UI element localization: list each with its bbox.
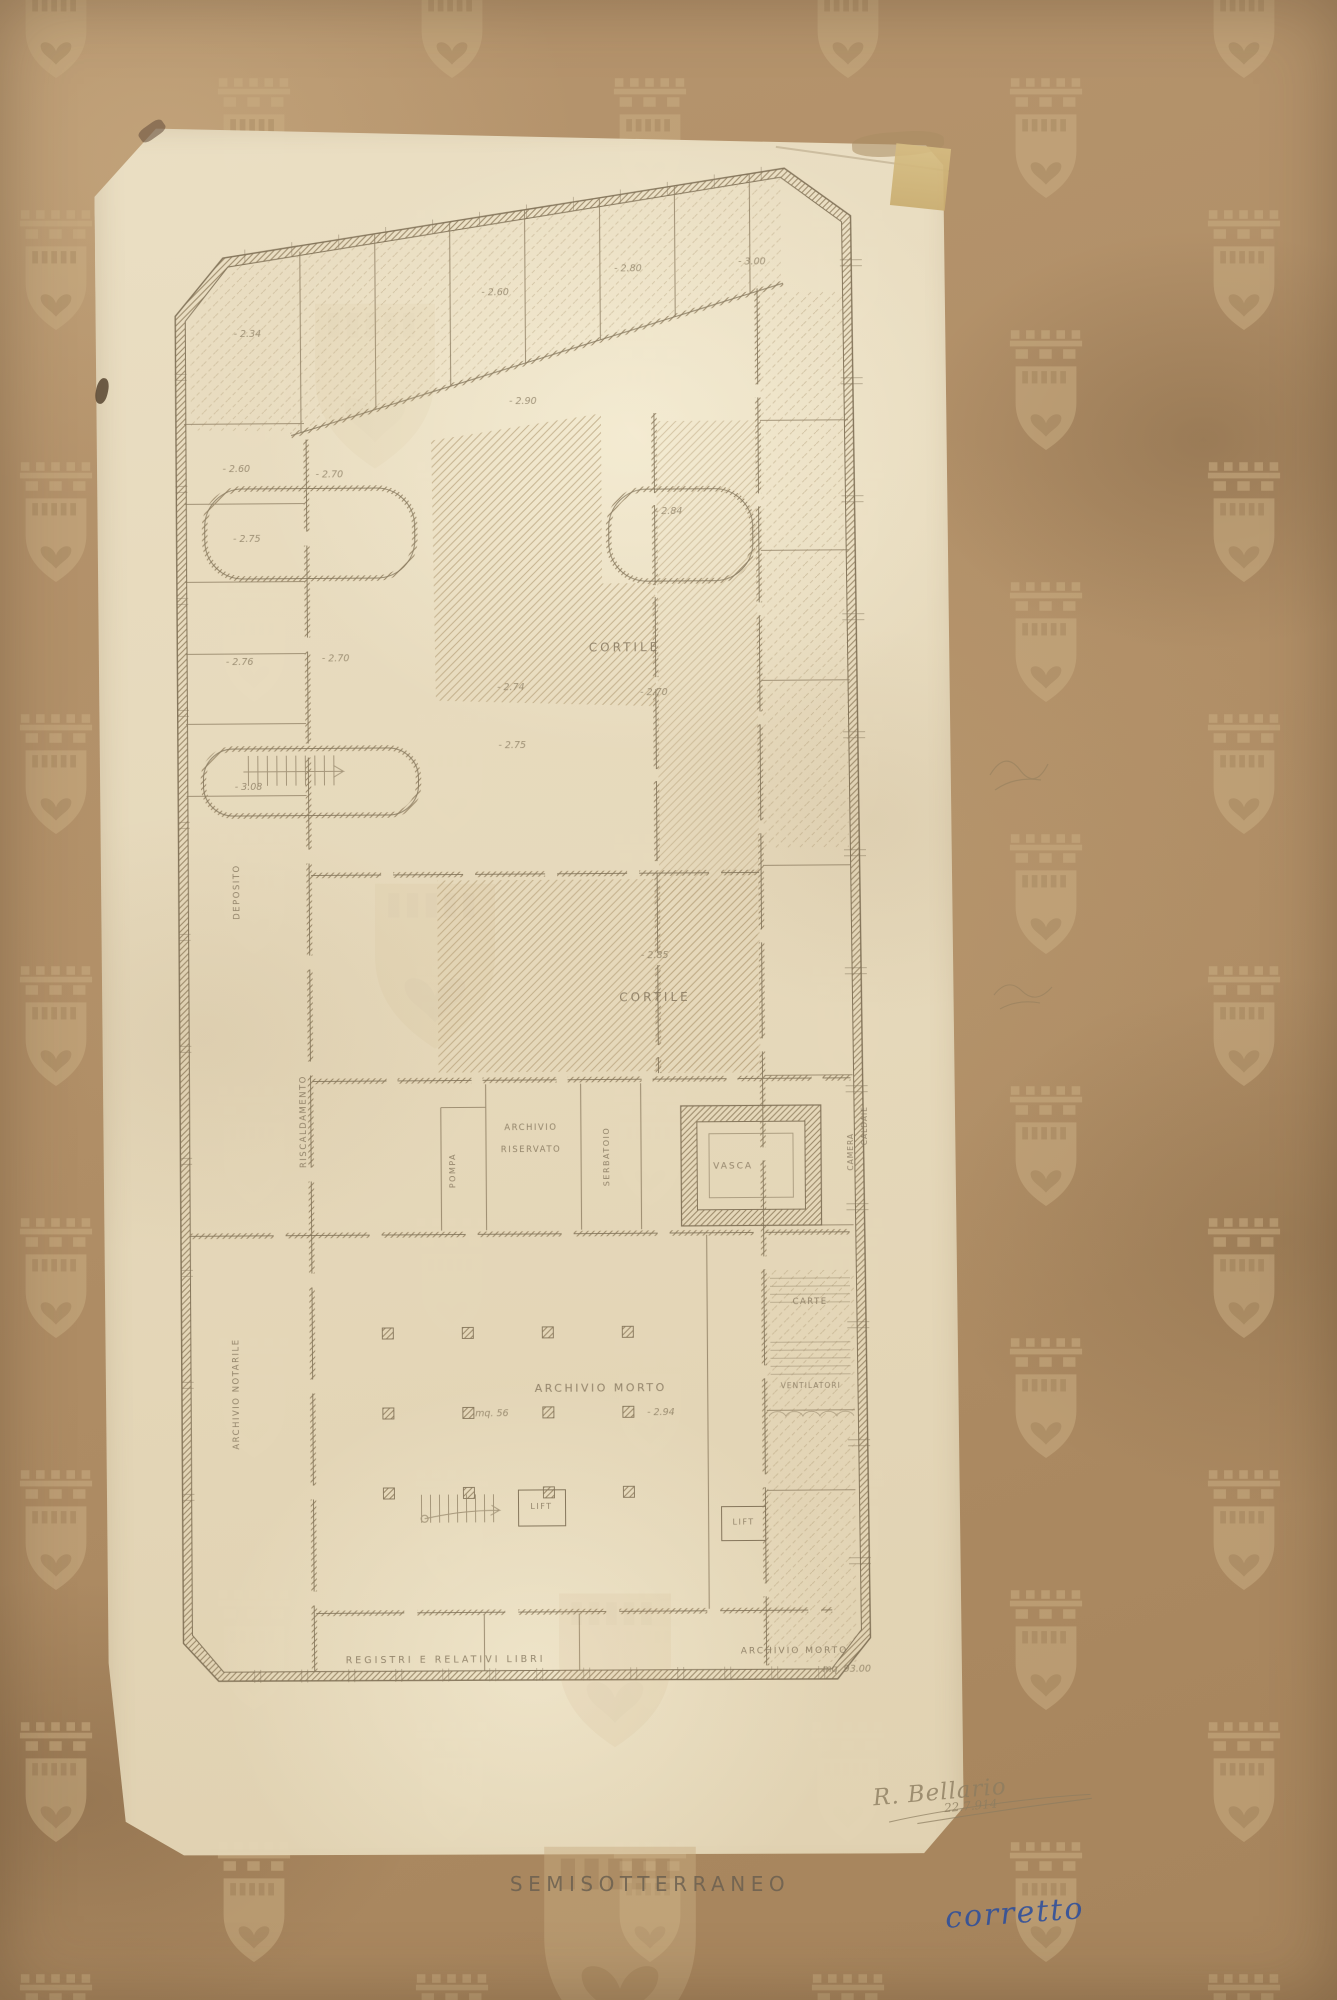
floor-plan: CORTILECORTILEARCHIVIORISERVATOPOMPASERB… bbox=[94, 119, 966, 1880]
courtyard-1-hatch bbox=[431, 413, 656, 708]
room-label: LIFT bbox=[733, 1517, 755, 1526]
elevation-mark: - 2.84 bbox=[655, 506, 683, 517]
courtyard-2-hatch bbox=[437, 878, 758, 1072]
room-label: VASCA bbox=[713, 1161, 753, 1171]
room-label: POMPA bbox=[448, 1153, 457, 1188]
room-label: LIFT bbox=[530, 1502, 552, 1511]
watermark-crest bbox=[18, 1466, 94, 1636]
watermark-crest bbox=[18, 206, 94, 376]
lift-shafts bbox=[518, 1488, 765, 1542]
room-label: CORTILE bbox=[589, 640, 661, 654]
room-label: ARCHIVIO bbox=[504, 1123, 557, 1133]
elevation-mark: - 2.75 bbox=[498, 740, 526, 751]
elevation-mark: - 2.80 bbox=[614, 263, 642, 274]
elevation-mark: - 2.70 bbox=[315, 469, 343, 480]
watermark-crest bbox=[1206, 1970, 1282, 2000]
elevation-mark: - 2.85 bbox=[641, 950, 669, 961]
elevation-mark: - 2.75 bbox=[233, 534, 261, 545]
room-label: CALDAIE bbox=[860, 1106, 869, 1145]
room-label: CORTILE bbox=[619, 990, 691, 1004]
pencil-scribble bbox=[985, 735, 1055, 805]
watermark-crest bbox=[612, 1838, 688, 2000]
mounting-board: CORTILECORTILEARCHIVIORISERVATOPOMPASERB… bbox=[0, 0, 1337, 2000]
watermark-crest bbox=[1008, 578, 1084, 748]
watermark-crest bbox=[1206, 0, 1282, 124]
watermark-crest bbox=[1008, 1586, 1084, 1756]
watermark-crest bbox=[1206, 710, 1282, 880]
watermark-crest bbox=[18, 1970, 94, 2000]
elevation-mark: - 2.60 bbox=[481, 287, 509, 298]
elevation-mark: - 2.90 bbox=[509, 396, 537, 407]
plan-caption: SEMISOTTERRANEO bbox=[470, 1872, 830, 1896]
watermark-crest bbox=[18, 0, 94, 124]
room-label: ARCHIVIO NOTARILE bbox=[231, 1338, 242, 1449]
elevation-mark: - 2.74 bbox=[497, 682, 525, 693]
watermark-crest bbox=[18, 1718, 94, 1888]
tape-patch bbox=[890, 143, 951, 210]
room-label: VENTILATORI bbox=[781, 1381, 841, 1390]
watermark-crest bbox=[1008, 1082, 1084, 1252]
elevation-mark: - 2.76 bbox=[226, 657, 254, 668]
watermark-crest bbox=[18, 1214, 94, 1384]
room-label: DEPOSITO bbox=[232, 864, 242, 920]
room-label: SERBATOIO bbox=[602, 1127, 611, 1186]
watermark-crest bbox=[18, 710, 94, 880]
room-label: ARCHIVIO MORTO bbox=[741, 1646, 849, 1657]
room-label: RISCALDAMENTO bbox=[299, 1075, 310, 1168]
room-label: CAMERA bbox=[846, 1133, 855, 1171]
stairs bbox=[243, 754, 499, 1524]
watermark-crest bbox=[1206, 1214, 1282, 1384]
watermark-crest bbox=[1008, 74, 1084, 244]
drawing-sheet: CORTILECORTILEARCHIVIORISERVATOPOMPASERB… bbox=[94, 119, 966, 1880]
watermark-crest bbox=[810, 0, 886, 124]
watermark-crest bbox=[414, 0, 490, 124]
watermark-crest bbox=[1206, 1466, 1282, 1636]
room-label: CARTE bbox=[793, 1297, 828, 1307]
plan-drawing: CORTILECORTILEARCHIVIORISERVATOPOMPASERB… bbox=[173, 166, 873, 1683]
watermark-crest bbox=[1206, 962, 1282, 1132]
elevation-mark: - 2.70 bbox=[640, 687, 668, 698]
watermark-crest bbox=[216, 1838, 292, 2000]
watermark-crest bbox=[1008, 326, 1084, 496]
watermark-crest bbox=[1206, 1718, 1282, 1888]
pencil-scribble bbox=[988, 965, 1058, 1025]
right-wing-hatch bbox=[759, 292, 849, 849]
elevation-mark: - 3.00 bbox=[738, 256, 766, 267]
elevation-mark: mq. 56 bbox=[475, 1408, 508, 1419]
elevation-mark: - 2.34 bbox=[234, 329, 262, 340]
watermark-crest bbox=[1206, 206, 1282, 376]
right-wing-hatch-lower bbox=[766, 1270, 857, 1663]
room-label: REGISTRI E RELATIVI LIBRI bbox=[346, 1654, 546, 1666]
room-label: RISERVATO bbox=[501, 1145, 562, 1155]
room-label: ARCHIVIO MORTO bbox=[535, 1381, 667, 1395]
watermark-crest bbox=[810, 1970, 886, 2000]
watermark-crest bbox=[18, 962, 94, 1132]
elevation-mark: - 2.60 bbox=[222, 464, 250, 475]
elevation-mark: mq. 93.00 bbox=[822, 1664, 871, 1675]
watermark-crest bbox=[18, 458, 94, 628]
elevation-mark: - 3.08 bbox=[235, 782, 263, 793]
elevation-mark: - 2.94 bbox=[647, 1407, 675, 1418]
watermark-crest bbox=[1008, 1334, 1084, 1504]
watermark-crest bbox=[1206, 458, 1282, 628]
elevation-mark: - 2.70 bbox=[322, 653, 350, 664]
watermark-crest bbox=[414, 1970, 490, 2000]
